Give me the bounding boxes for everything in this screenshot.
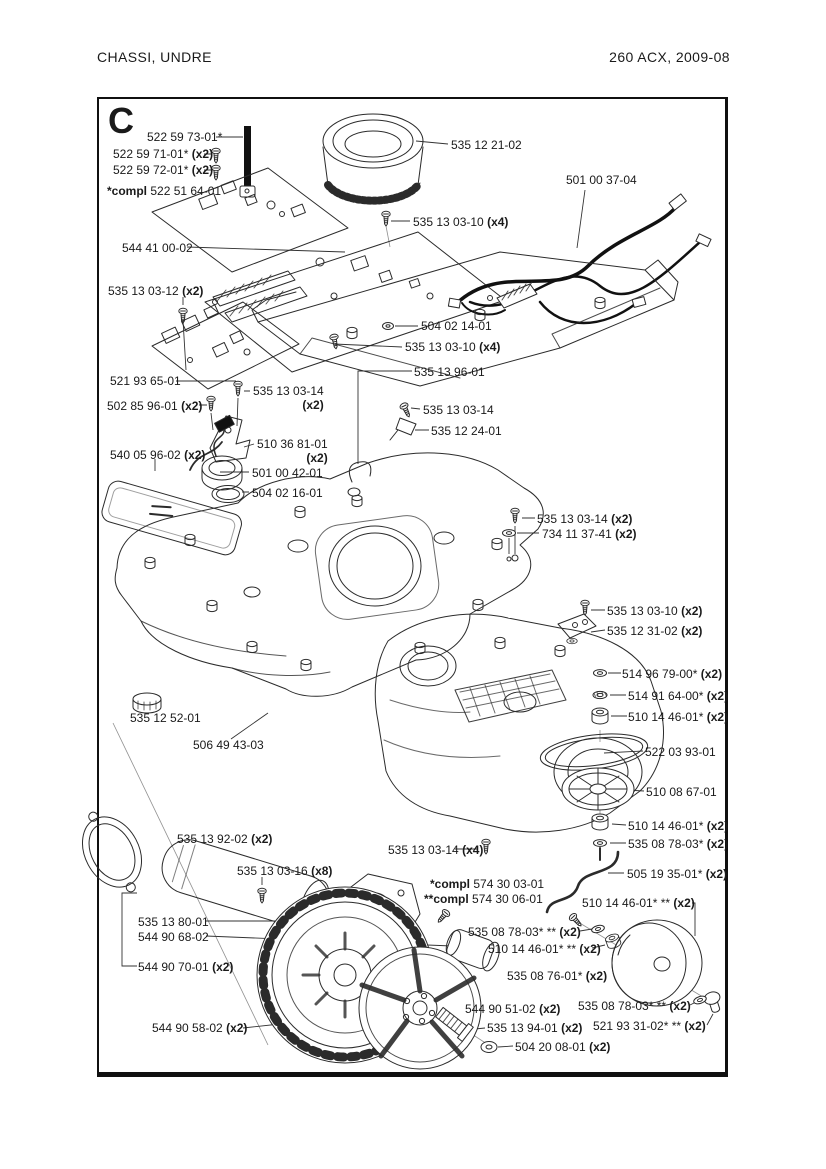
part-label: 535 12 52-01 [130, 711, 201, 725]
part-label: 734 11 37-41 (x2) [542, 527, 637, 541]
part-label: 522 03 93-01 [645, 745, 716, 759]
part-label: 535 13 03-10 (x4) [413, 215, 508, 229]
part-label: 540 05 96-02 (x2) [110, 448, 205, 462]
part-label: 510 08 67-01 [646, 785, 717, 799]
part-label: 535 12 31-02 (x2) [607, 624, 702, 638]
part-label: 522 59 73-01* [147, 130, 222, 144]
part-label: 535 13 80-01 [138, 915, 209, 929]
part-label: 535 08 78-03* ** (x2) [468, 925, 581, 939]
part-label: 510 14 46-01* (x2) [628, 819, 728, 833]
part-label: *compl 522 51 64-01 [107, 184, 221, 198]
part-label: 535 13 94-01 (x2) [487, 1021, 582, 1035]
part-label: 535 13 03-14 [423, 403, 494, 417]
parts-manual-page: CHASSI, UNDRE 260 ACX, 2009-08 C [0, 0, 826, 1169]
part-label: 521 93 65-01 [110, 374, 181, 388]
part-label: 514 96 79-00* (x2) [622, 667, 722, 681]
part-label: 506 49 43-03 [193, 738, 264, 752]
part-label: **compl 574 30 06-01 [424, 892, 543, 906]
part-label: 535 08 78-03* (x2) [628, 837, 728, 851]
part-label: 535 13 03-10 (x4) [405, 340, 500, 354]
part-label: 535 13 03-14(x2) [253, 384, 324, 412]
part-label: 535 13 92-02 (x2) [177, 832, 272, 846]
part-label: 535 13 03-10 (x2) [607, 604, 702, 618]
part-label: 502 85 96-01 (x2) [107, 399, 202, 413]
part-label: 510 14 46-01* (x2) [628, 710, 728, 724]
part-labels-layer: 522 59 73-01*522 59 71-01* (x2)522 59 72… [0, 0, 826, 1169]
part-label: 535 13 03-12 (x2) [108, 284, 203, 298]
part-label: 510 14 46-01* ** (x2) [582, 896, 695, 910]
part-label: 544 41 00-02 [122, 241, 193, 255]
part-label: 535 12 24-01 [431, 424, 502, 438]
part-label: 510 36 81-01(x2) [257, 437, 328, 465]
part-label: 522 59 71-01* (x2) [113, 147, 213, 161]
part-label: 544 90 68-02 [138, 930, 209, 944]
part-label: 510 14 46-01* ** (x2) [488, 942, 601, 956]
part-label: 535 08 76-01* (x2) [507, 969, 607, 983]
part-label: 544 90 70-01 (x2) [138, 960, 233, 974]
part-label: 521 93 31-02* ** (x2) [593, 1019, 706, 1033]
part-label: 504 02 16-01 [252, 486, 323, 500]
part-label: 544 90 51-02 (x2) [465, 1002, 560, 1016]
part-label: 501 00 42-01 [252, 466, 323, 480]
part-label: 535 13 03-14 (x2) [537, 512, 632, 526]
part-label: 504 20 08-01 (x2) [515, 1040, 610, 1054]
part-label: 501 00 37-04 [566, 173, 637, 187]
part-label: 535 13 03-14 (x4) [388, 843, 483, 857]
part-label: 544 90 58-02 (x2) [152, 1021, 247, 1035]
part-label: 505 19 35-01* (x2) [627, 867, 727, 881]
part-label: 504 02 14-01 [421, 319, 492, 333]
part-label: 514 91 64-00* (x2) [628, 689, 728, 703]
part-label: *compl 574 30 03-01 [430, 877, 544, 891]
part-label: 522 59 72-01* (x2) [113, 163, 213, 177]
part-label: 535 13 96-01 [414, 365, 485, 379]
part-label: 535 12 21-02 [451, 138, 522, 152]
part-label: 535 13 03-16 (x8) [237, 864, 332, 878]
part-label: 535 08 78-03* ** (x2) [578, 999, 691, 1013]
